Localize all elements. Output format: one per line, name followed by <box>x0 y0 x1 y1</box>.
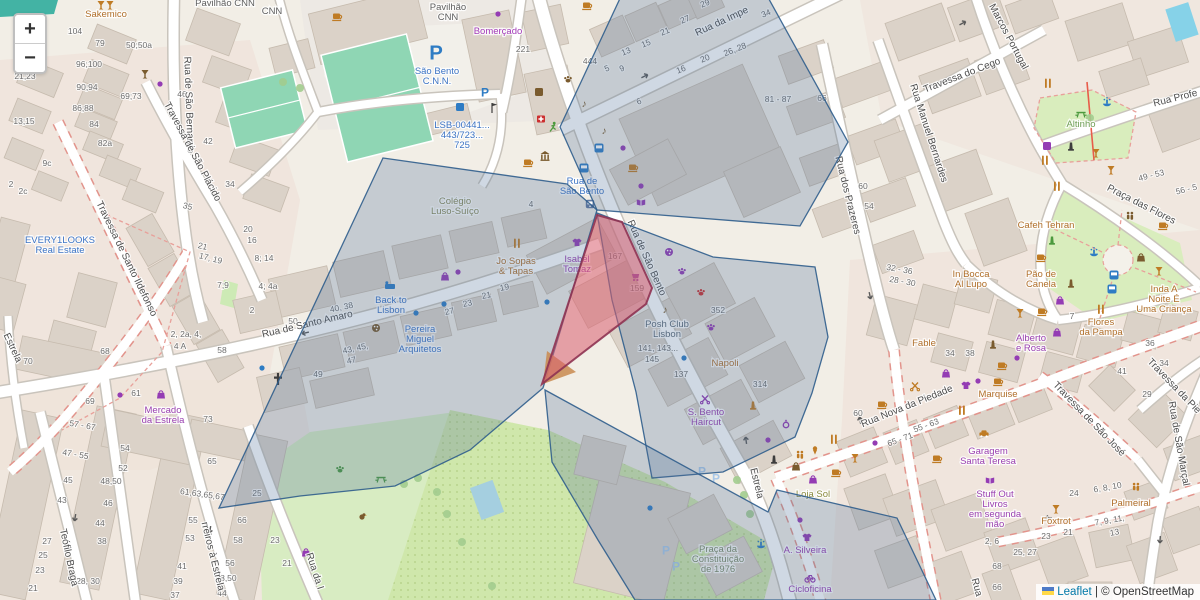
house-number: 4; 4a <box>259 281 278 291</box>
house-number: 16 <box>247 235 257 245</box>
zoom-out-button[interactable]: − <box>15 44 45 72</box>
place-label: EVERY1LOOKSReal Estate <box>25 235 95 256</box>
house-number: 21 <box>282 558 292 568</box>
place-label: Altinho <box>1066 119 1095 130</box>
house-number: 60 <box>858 181 868 191</box>
house-number: 44 <box>95 518 105 528</box>
house-number: 4 A <box>174 341 187 351</box>
house-number: 90;94 <box>76 82 98 92</box>
house-number: 8; 14 <box>255 253 274 263</box>
place-label: Cafeh Tehran <box>1018 220 1075 231</box>
house-number: 7;9 <box>217 280 229 290</box>
house-number: 69 <box>85 396 95 406</box>
tree <box>488 582 496 590</box>
house-number: 50;50a <box>126 40 152 50</box>
house-number: 54 <box>864 201 874 211</box>
house-number: 48,50 <box>100 476 122 486</box>
house-number: 82a <box>98 138 112 148</box>
house-number: 23 <box>270 535 280 545</box>
house-number: 53 <box>185 533 195 543</box>
house-number: 46 <box>103 498 113 508</box>
house-number: 56 <box>225 558 235 568</box>
place-label: Foxtrot <box>1041 516 1071 527</box>
house-number: 55 <box>188 515 198 525</box>
dot-icon <box>872 440 877 445</box>
leaflet-map-app: ♪♪♪PPPPPP1047950;50a96;10090;9486;8869;7… <box>0 0 1200 600</box>
place-label: Pão deCanela <box>1026 269 1057 290</box>
house-number: 34 <box>225 179 235 189</box>
house-number: 66 <box>237 515 247 525</box>
place-label: Pavilhão CNN <box>195 0 255 9</box>
house-number: 65 <box>207 456 217 466</box>
house-number: 79 <box>95 38 105 48</box>
dot-icon <box>157 81 162 86</box>
house-number: 52 <box>118 463 128 473</box>
dot-icon <box>1014 355 1019 360</box>
place-label: Bomerçado <box>474 26 523 37</box>
box-icon <box>535 88 543 96</box>
house-number: 7 <box>1070 311 1075 321</box>
place-label: In BoccaAl Lupo <box>953 269 991 290</box>
tree <box>279 78 287 86</box>
bus-icon <box>1110 271 1119 280</box>
svg-text:P: P <box>429 43 443 65</box>
house-number: 2c <box>19 186 29 196</box>
zoom-in-button[interactable]: + <box>15 15 45 44</box>
house-number: 9c <box>43 158 53 168</box>
plaza-circle <box>1103 245 1133 275</box>
house-number: 2, 2a, 4, <box>171 329 202 339</box>
house-number: 34 <box>945 348 955 358</box>
house-number: 68 <box>992 561 1002 571</box>
house-number: 29 <box>1142 389 1152 399</box>
house-number: 69;73 <box>120 91 142 101</box>
map-canvas[interactable]: ♪♪♪PPPPPP1047950;50a96;10090;9486;8869;7… <box>0 0 1200 600</box>
box-icon <box>456 103 464 111</box>
place-label: Palmeiral <box>1111 498 1151 509</box>
house-number: 37 <box>170 590 180 600</box>
house-number: 25, 27 <box>1013 547 1037 557</box>
house-number: 61 <box>131 388 141 398</box>
attribution-bar: Leaflet | © OpenStreetMap <box>1036 584 1200 600</box>
house-number: 23 <box>35 565 45 575</box>
house-number: 27 <box>42 536 52 546</box>
house-number: 73 <box>203 414 213 424</box>
house-number: 45 <box>63 475 73 485</box>
tree <box>296 84 304 92</box>
house-number: 2, 6 <box>985 536 999 546</box>
tree <box>458 538 466 546</box>
house-number: 2 <box>9 179 14 189</box>
house-number: 221 <box>516 44 530 54</box>
tree <box>733 476 741 484</box>
house-number: 25 <box>38 550 48 560</box>
dot-icon <box>117 392 122 397</box>
dot-icon <box>975 378 980 383</box>
house-number: 38 <box>965 348 975 358</box>
house-number: 58 <box>217 345 227 355</box>
place-label: Sakemico <box>85 9 127 20</box>
bus-icon <box>1108 285 1117 294</box>
copyright-symbol: © <box>1101 586 1113 598</box>
place-label: Albertoe Rosa <box>1016 333 1047 354</box>
house-number: 66 <box>992 582 1002 592</box>
zoom-control: + − <box>13 13 47 74</box>
house-number: 21 <box>1063 527 1073 537</box>
P-icon: P <box>481 86 489 100</box>
place-label: Fable <box>912 338 936 349</box>
house-number: 23 <box>1041 531 1051 541</box>
house-number: 70 <box>23 356 33 366</box>
house-number: 38 <box>97 536 107 546</box>
place-label: Marquise <box>978 389 1017 400</box>
house-number: 43 <box>57 495 67 505</box>
attribution-separator: | <box>1092 586 1101 598</box>
house-number: 96;100 <box>76 59 102 69</box>
place-label: Mercadoda Estrela <box>142 405 185 426</box>
openstreetmap-link[interactable]: OpenStreetMap <box>1113 586 1194 598</box>
svg-text:P: P <box>481 86 489 100</box>
dot-icon <box>259 365 264 370</box>
house-number: 84 <box>89 119 99 129</box>
house-number: 104 <box>68 26 82 36</box>
house-number: 24 <box>1069 488 1079 498</box>
box-icon <box>1043 142 1051 150</box>
tree <box>433 488 441 496</box>
dot-icon <box>495 11 500 16</box>
house-number: 13;15 <box>13 116 35 126</box>
house-number: 39 <box>173 576 183 586</box>
house-number: 86;88 <box>72 103 94 113</box>
house-number: 54 <box>120 443 130 453</box>
house-number: 60 <box>853 408 863 418</box>
house-number: 42 <box>203 136 213 146</box>
P-icon: P <box>429 43 443 65</box>
house-number: 41 <box>1117 366 1127 376</box>
house-number: 58 <box>233 535 243 545</box>
house-number: 20 <box>243 224 253 234</box>
leaflet-link[interactable]: Leaflet <box>1057 586 1092 598</box>
house-number: 2 <box>250 305 255 315</box>
aid-icon <box>537 116 545 123</box>
house-number: 13 <box>1109 526 1120 538</box>
tree <box>443 510 451 518</box>
house-number: 21 <box>28 583 38 593</box>
ukraine-flag-icon <box>1042 587 1054 595</box>
house-number: 68 <box>100 346 110 356</box>
place-label: CNN <box>262 6 283 17</box>
house-number: 36 <box>1145 338 1155 348</box>
house-number: 41 <box>177 561 187 571</box>
